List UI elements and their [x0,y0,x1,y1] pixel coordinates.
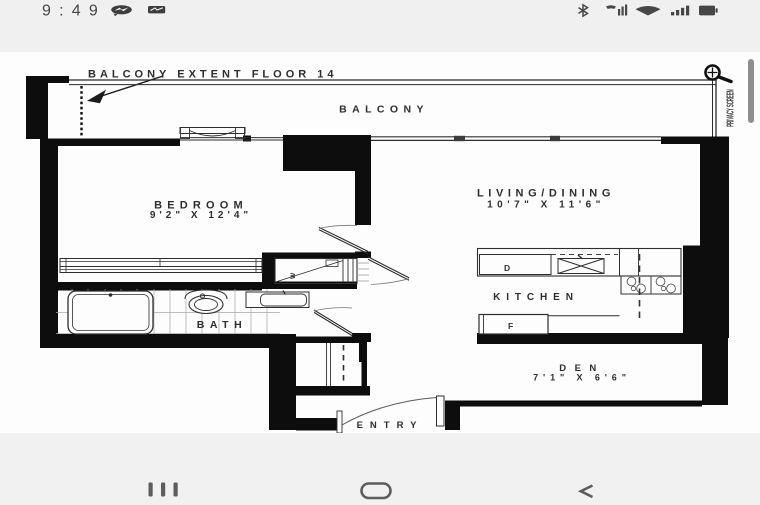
svg-text:BALCONY EXTENT FLOOR 14: BALCONY EXTENT FLOOR 14 [88,69,337,81]
svg-text:10'7" X 11'6": 10'7" X 11'6" [487,200,605,211]
svg-text:9'2" X 12'4": 9'2" X 12'4" [150,210,252,221]
svg-text:F: F [508,321,514,331]
svg-text:KITCHEN: KITCHEN [493,292,579,303]
svg-text:7'1" X 6'6": 7'1" X 6'6" [533,373,631,383]
svg-text:9:49: 9:49 [42,3,106,20]
svg-text:PRIVACY SCREEN: PRIVACY SCREEN [726,89,737,127]
svg-text:BALCONY: BALCONY [339,104,429,116]
svg-text:BATH: BATH [197,319,247,331]
svg-text:ENTRY: ENTRY [357,420,424,431]
svg-text:W: W [290,272,297,279]
svg-text:D: D [504,263,511,273]
svg-text:LIVING/DINING: LIVING/DINING [477,188,615,200]
